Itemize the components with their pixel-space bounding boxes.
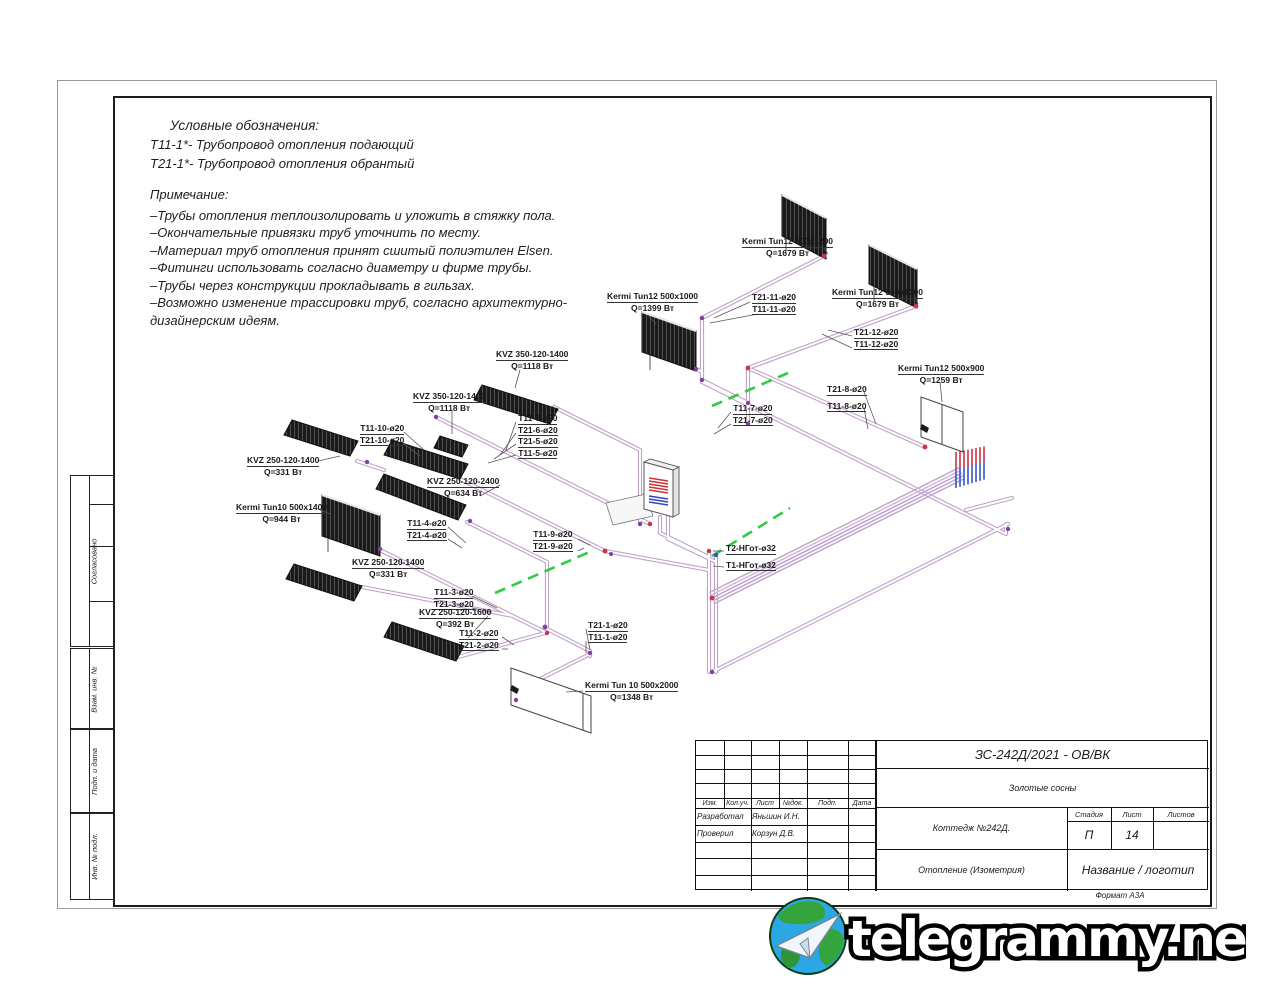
label-leaders	[318, 248, 942, 692]
tb-sheet-label: Лист	[1111, 807, 1153, 821]
diagram-label: Kermi Tun12 500x1200Q=1679 Вт	[832, 287, 923, 310]
tb-drawing-title: Отопление (Изометрия)	[876, 849, 1067, 891]
stamp-inv-orig-label: Инв. № подл.	[71, 813, 89, 899]
diagram-label: Т21-12-ø20Т11-12-ø20	[854, 327, 898, 350]
diagram-label: KVZ 250-120-1600Q=392 Вт	[419, 607, 491, 630]
diagram-label: Kermi Tun10 500x1400Q=944 Вт	[236, 502, 327, 525]
tb-stage-label: Стадия	[1067, 807, 1111, 821]
tb-project: Золотые сосны	[876, 768, 1209, 807]
stamp-approved-label: Согласовано	[71, 476, 89, 646]
diagram-label: Т11-6-ø20Т21-6-ø20Т21-5-ø20Т11-5-ø20	[518, 413, 558, 459]
tb-col-podp: Подп.	[807, 798, 848, 808]
diagram-label: Т2-НГот-ø32Т1-НГот-ø32	[726, 543, 776, 571]
tb-sheets-label: Листов	[1153, 807, 1209, 821]
diagram-label: Т11-4-ø20Т21-4-ø20	[407, 518, 447, 541]
tb-doc-code: ЗС-242Д/2021 - ОВ/ВК	[876, 741, 1209, 768]
diagram-label: Т21-1-ø20Т11-1-ø20	[588, 620, 628, 643]
diagram-label: Kermi Tun12 500x900Q=1259 Вт	[898, 363, 984, 386]
stamp-replace-inv-box: Взам. инв. №	[70, 648, 115, 730]
convector-kvz-box	[434, 436, 468, 457]
diagram-label: KVZ 250-120-1400Q=331 Вт	[247, 455, 319, 478]
radiator-kermi-2000-outline	[511, 668, 591, 733]
tb-sheets-value	[1153, 821, 1209, 849]
diagram-label: Kermi Tun12 500x1000Q=1399 Вт	[607, 291, 698, 314]
convector-kvz	[284, 420, 358, 456]
diagram-label: KVZ 250-120-1400Q=331 Вт	[352, 557, 424, 580]
tb-checked-name: Корзун Д.В.	[752, 825, 807, 842]
tb-sheet-value: 14	[1111, 821, 1153, 849]
convector-kvz	[286, 564, 362, 601]
diagram-label: KVZ 250-120-2400Q=634 Вт	[427, 476, 499, 499]
tb-col-ndok: №док.	[779, 798, 807, 808]
diagram-label: Т11-2-ø20Т21-2-ø20	[459, 628, 499, 651]
tb-col-list: Лист	[751, 798, 779, 808]
stamp-sign-date-box: Подп. и дата	[70, 728, 115, 814]
diagram-label: Т21-8-ø20Т11-8-ø20	[827, 384, 867, 412]
tb-col-koluch: Кол.уч.	[724, 798, 751, 808]
watermark-text: telegrammy.net	[848, 910, 1246, 968]
stamp-inv-orig-box: Инв. № подл.	[70, 812, 115, 900]
title-block: Изм. Кол.уч. Лист №док. Подп. Дата Разра…	[695, 740, 1208, 890]
diagram-label: Kermi Tun12 500x1200Q=1679 Вт	[742, 236, 833, 259]
tb-object: Коттедж №242Д.	[876, 807, 1067, 849]
tb-col-izm: Изм.	[696, 798, 724, 808]
stamp-replace-inv-label: Взам. инв. №	[71, 649, 89, 729]
tb-developed-name: Яньшин И.Н.	[752, 808, 807, 825]
tb-company: Название / логотип	[1067, 849, 1209, 891]
diagram-label: Т11-7-ø20Т21-7-ø20	[733, 403, 773, 426]
tb-checked-label: Проверил	[697, 825, 751, 842]
riser-manifold	[956, 446, 984, 488]
drawing-sheet: Условные обозначения: Т11-1*- Трубопрово…	[0, 0, 1280, 989]
tb-developed-label: Разработал	[697, 808, 751, 825]
stamp-approved-box: Согласовано	[70, 475, 115, 647]
diagram-label: Т11-10-ø20Т21-10-ø20	[360, 423, 404, 446]
watermark: telegrammy.net	[766, 888, 1246, 988]
diagram-label: Т21-11-ø20Т11-11-ø20	[752, 292, 796, 315]
diagram-label: KVZ 350-120-1400Q=1118 Вт	[413, 391, 485, 414]
diagram-label: KVZ 350-120-1400Q=1118 Вт	[496, 349, 568, 372]
tb-stage-value: П	[1067, 821, 1111, 849]
radiator-supports	[328, 238, 874, 552]
tb-col-data: Дата	[848, 798, 876, 808]
stamp-sign-date-label: Подп. и дата	[71, 729, 89, 813]
collector-cabinet	[606, 459, 679, 525]
telegram-globe-logo	[770, 898, 846, 974]
diagram-label: Т11-9-ø20Т21-9-ø20	[533, 529, 573, 552]
diagram-label: Kermi Tun 10 500x2000Q=1348 Вт	[585, 680, 678, 703]
